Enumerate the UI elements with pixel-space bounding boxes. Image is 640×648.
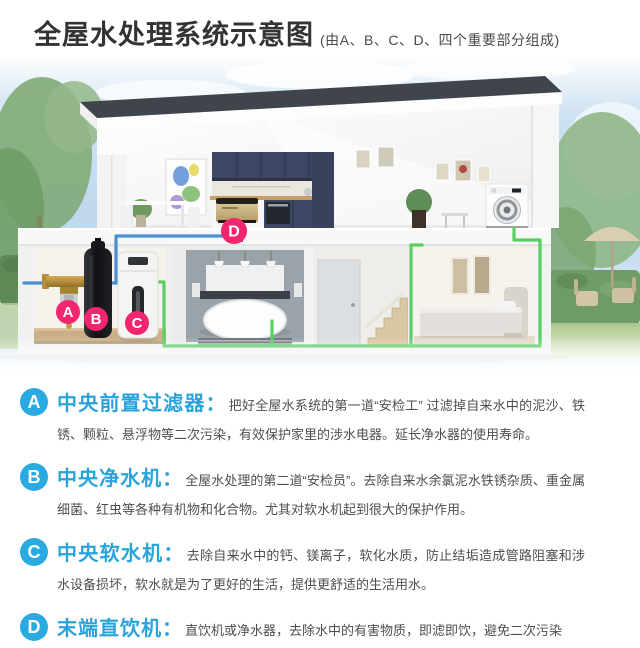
bathroom (172, 247, 304, 346)
marker-c-label: C (132, 315, 143, 332)
washing-machine (486, 184, 528, 229)
section-d: D 末端直饮机：直饮机或净水器，去除水中的有害物质，即滤即饮，避免二次污染 (20, 611, 622, 648)
section-c-text: 中央软水机：去除自来水中的钙、镁离子，软化水质，防止结垢造成管路阻塞和涉水设备损… (57, 536, 585, 597)
section-c: C 中央软水机：去除自来水中的钙、镁离子，软化水质，防止结垢造成管路阻塞和涉水设… (20, 536, 622, 597)
section-a: A 中央前置过滤器：把好全屋水系统的第一道“安检工” 过滤掉自来水中的泥沙、铁锈… (20, 386, 622, 447)
marker-b: B (84, 307, 108, 331)
marker-d-label: D (228, 224, 240, 241)
section-a-badge: A (20, 388, 48, 416)
section-b-heading: 中央净水机： (57, 468, 183, 490)
marker-a-label: A (63, 304, 74, 321)
section-d-badge: D (20, 613, 48, 641)
section-c-badge: C (20, 538, 48, 566)
section-b: B 中央净水机：全屋水处理的第二道“安检员”。去除自来水余氯泥水铁锈杂质、重金属… (20, 461, 622, 522)
section-c-heading: 中央软水机： (57, 543, 185, 565)
section-d-description: 直饮机或净水器，去除水中的有害物质，即滤即饮，避免二次污染 (185, 623, 562, 638)
marker-b-label: B (91, 311, 102, 328)
page-header: 全屋水处理系统示意图 (由A、B、C、D、四个重要部分组成) (0, 0, 640, 55)
hallway (314, 247, 410, 346)
section-b-text: 中央净水机：全屋水处理的第二道“安检员”。去除自来水余氯泥水铁锈杂质、重金属细菌… (57, 461, 585, 522)
page-title: 全屋水处理系统示意图 (34, 22, 314, 49)
section-d-heading: 末端直饮机： (57, 618, 183, 640)
section-a-heading: 中央前置过滤器： (57, 393, 227, 415)
marker-c: C (125, 311, 149, 335)
marker-a: A (56, 300, 80, 324)
bathtub (204, 300, 286, 340)
wall-painting (166, 159, 206, 215)
section-d-text: 末端直饮机：直饮机或净水器，去除水中的有害物质，即滤即饮，避免二次污染 (57, 611, 562, 648)
bottom-fade (0, 337, 640, 378)
corner-pillar (531, 104, 559, 228)
legend-sections: A 中央前置过滤器：把好全屋水系统的第一道“安检工” 过滤掉自来水中的泥沙、铁锈… (0, 378, 640, 648)
marker-d: D (221, 218, 247, 244)
house-illustration: A B C D (0, 55, 640, 378)
page-subtitle: (由A、B、C、D、四个重要部分组成) (320, 31, 560, 49)
section-b-badge: B (20, 463, 48, 491)
bedroom (414, 247, 535, 346)
door (318, 260, 360, 346)
section-a-text: 中央前置过滤器：把好全屋水系统的第一道“安检工” 过滤掉自来水中的泥沙、铁锈、颗… (57, 386, 585, 447)
